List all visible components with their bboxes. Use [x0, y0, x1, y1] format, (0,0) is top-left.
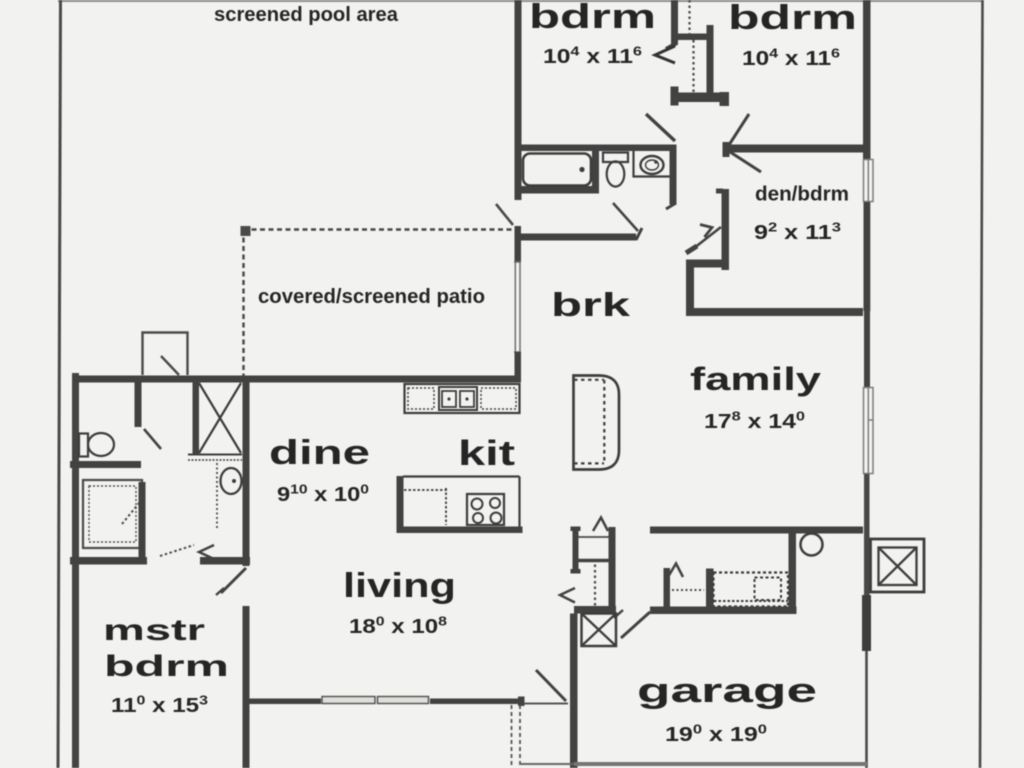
svg-text:living: living — [343, 567, 456, 605]
svg-text:den/bdrm: den/bdrm — [755, 183, 849, 206]
svg-text:family: family — [690, 361, 821, 397]
svg-text:covered/screened patio: covered/screened patio — [258, 286, 485, 308]
svg-text:dine: dine — [269, 434, 370, 472]
svg-text:kit: kit — [458, 434, 515, 473]
svg-text:104​ x 116​: 104​ x 116​ — [742, 45, 840, 70]
svg-text:brk: brk — [551, 286, 631, 323]
svg-text:garage: garage — [637, 672, 817, 710]
svg-text:bdrm: bdrm — [104, 650, 229, 683]
svg-text:178​ x 140​: 178​ x 140​ — [704, 408, 805, 433]
svg-text:mstr: mstr — [103, 614, 205, 647]
svg-text:screened pool area: screened pool area — [214, 4, 399, 26]
svg-text:92​ x 113​: 92​ x 113​ — [754, 219, 841, 244]
svg-text:bdrm: bdrm — [529, 0, 656, 36]
svg-text:bdrm: bdrm — [728, 0, 857, 37]
svg-text:180​ x 108​: 180​ x 108​ — [349, 613, 447, 638]
svg-text:104​ x 116​: 104​ x 116​ — [543, 43, 642, 68]
svg-text:190​ x 190​: 190​ x 190​ — [665, 721, 767, 746]
svg-text:110​ x 153​: 110​ x 153​ — [111, 692, 208, 717]
